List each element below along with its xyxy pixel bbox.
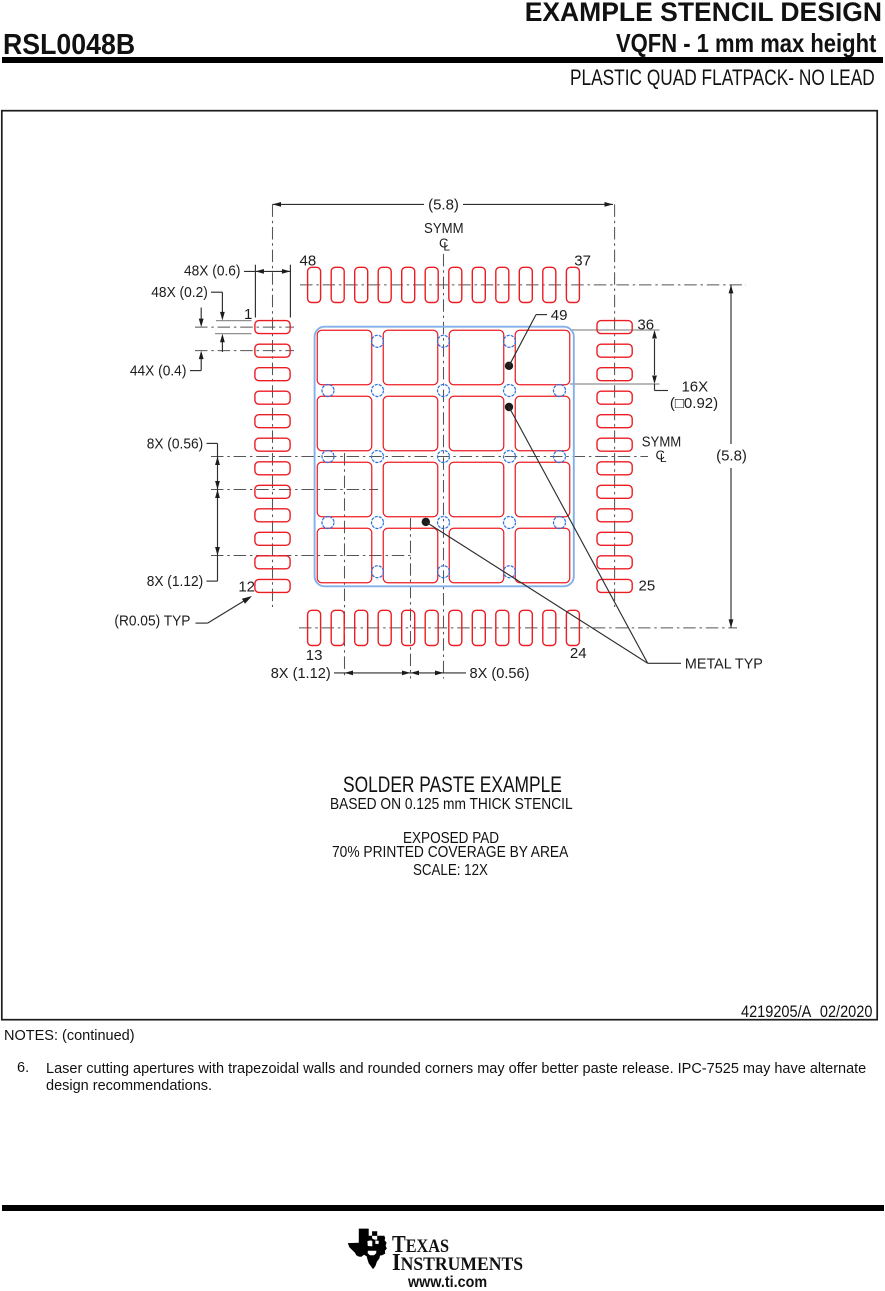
svg-text:25: 25 — [639, 578, 656, 595]
svg-text:49: 49 — [551, 307, 568, 324]
svg-text:48X (0.2): 48X (0.2) — [151, 284, 208, 301]
svg-text:13: 13 — [306, 647, 323, 664]
svg-text:44X (0.4): 44X (0.4) — [130, 363, 187, 380]
svg-text:48: 48 — [300, 252, 317, 269]
svg-text:8X (0.56): 8X (0.56) — [470, 665, 530, 682]
svg-text:36: 36 — [637, 317, 654, 334]
svg-text:37: 37 — [574, 252, 591, 269]
svg-text:L: L — [443, 240, 450, 254]
svg-text:8X (1.12): 8X (1.12) — [271, 665, 331, 682]
svg-text:METAL TYP: METAL TYP — [685, 655, 763, 672]
svg-text:24: 24 — [570, 645, 587, 662]
svg-text:8X (0.56): 8X (0.56) — [147, 435, 204, 452]
svg-text:48X (0.6): 48X (0.6) — [184, 263, 241, 280]
svg-text:(5.8): (5.8) — [428, 196, 459, 213]
svg-text:16X: 16X — [681, 378, 708, 395]
svg-text:8X (1.12): 8X (1.12) — [147, 573, 204, 590]
svg-text:(5.8): (5.8) — [716, 447, 747, 464]
svg-text:SYMM: SYMM — [424, 220, 464, 237]
svg-text:1: 1 — [244, 306, 252, 323]
svg-text:L: L — [660, 451, 667, 465]
svg-text:(□0.92): (□0.92) — [670, 395, 718, 412]
svg-text:12: 12 — [238, 579, 255, 596]
svg-text:(R0.05) TYP: (R0.05) TYP — [114, 613, 190, 630]
